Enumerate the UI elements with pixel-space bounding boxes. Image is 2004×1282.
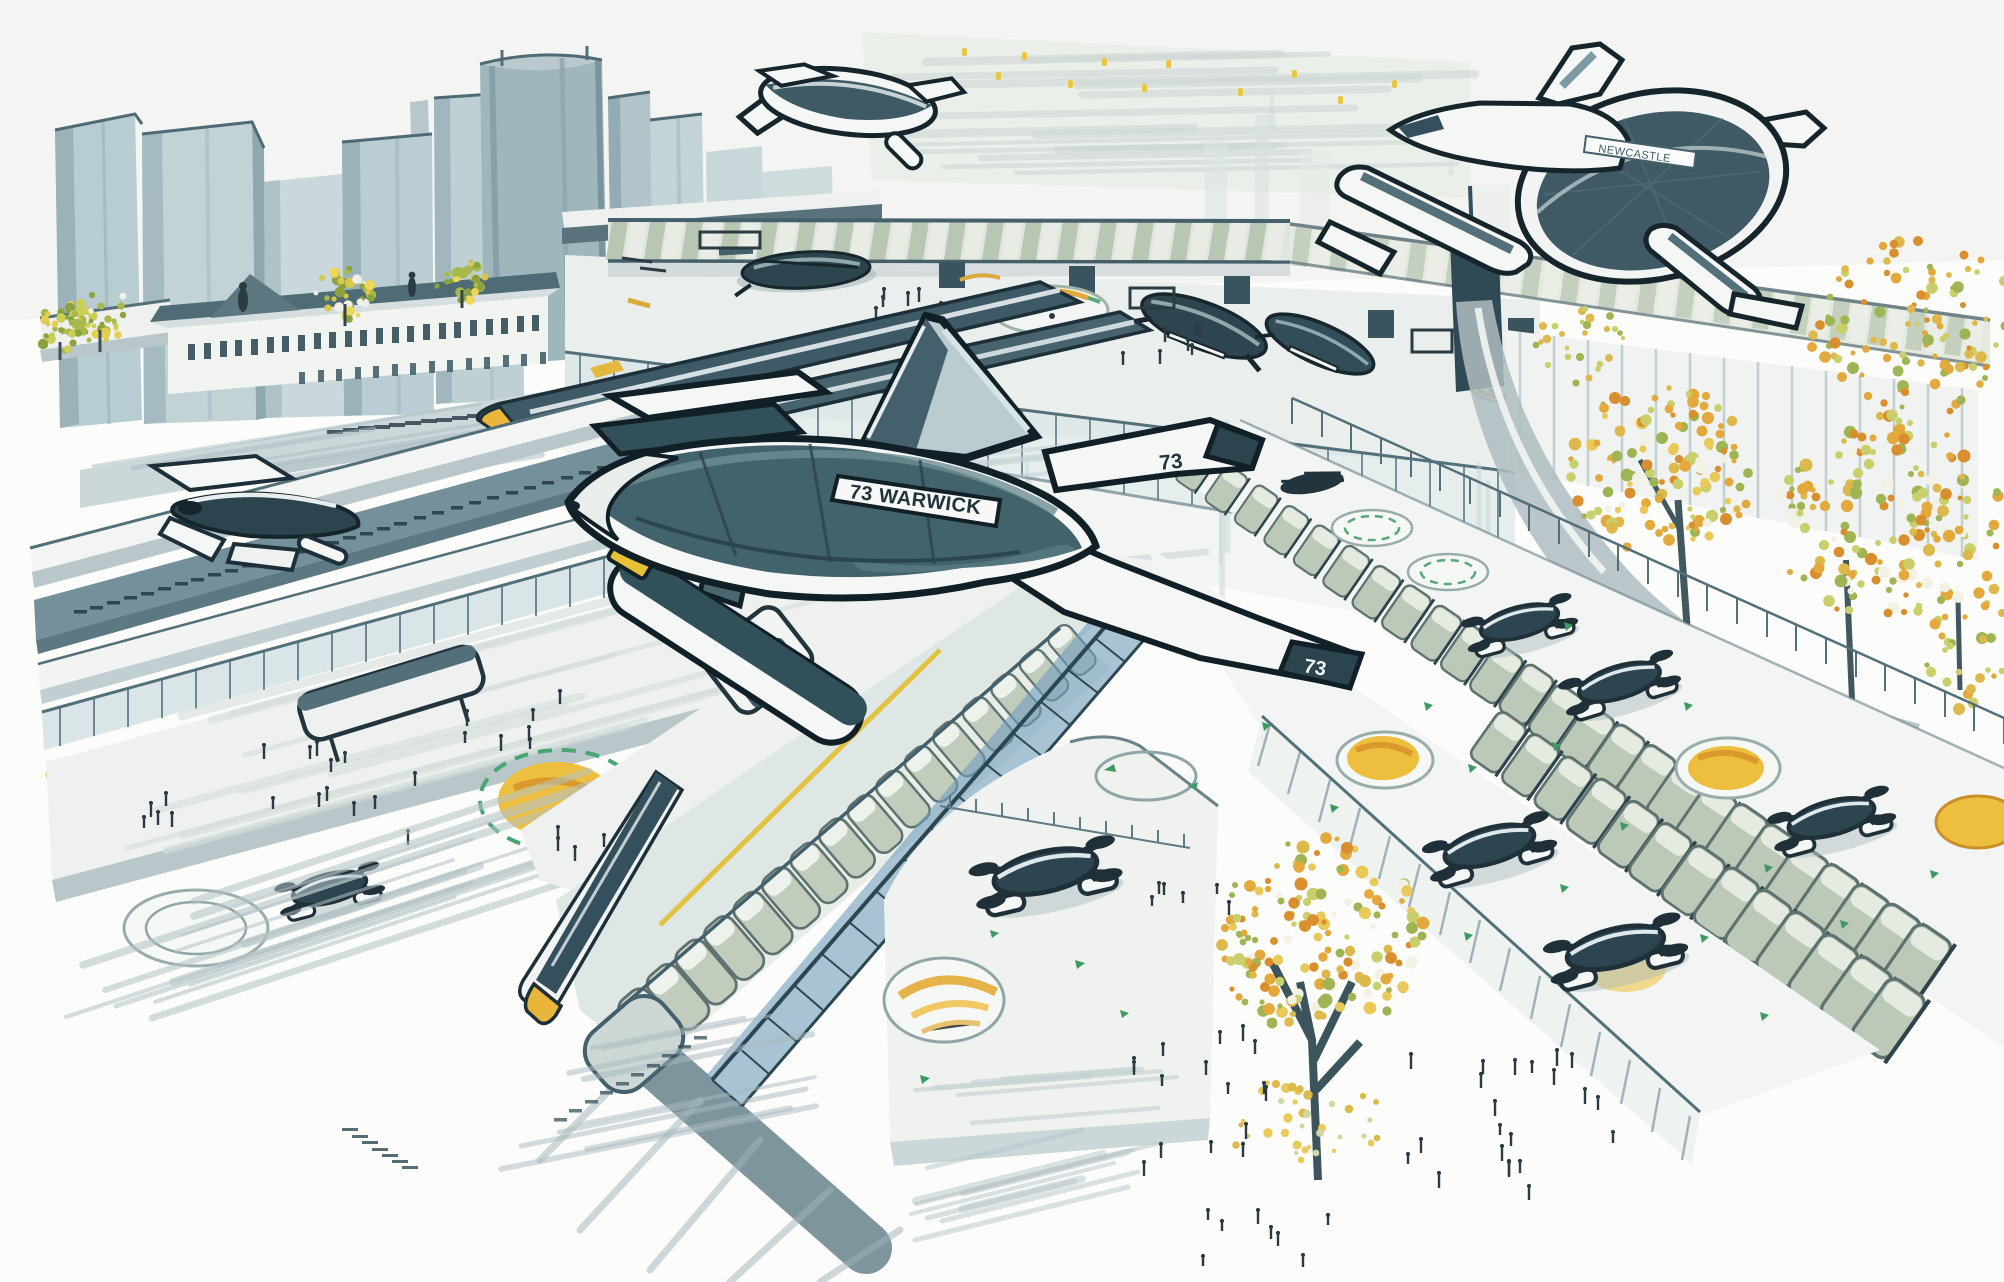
svg-text:73: 73 <box>1158 450 1184 475</box>
svg-text:73: 73 <box>1302 655 1328 681</box>
